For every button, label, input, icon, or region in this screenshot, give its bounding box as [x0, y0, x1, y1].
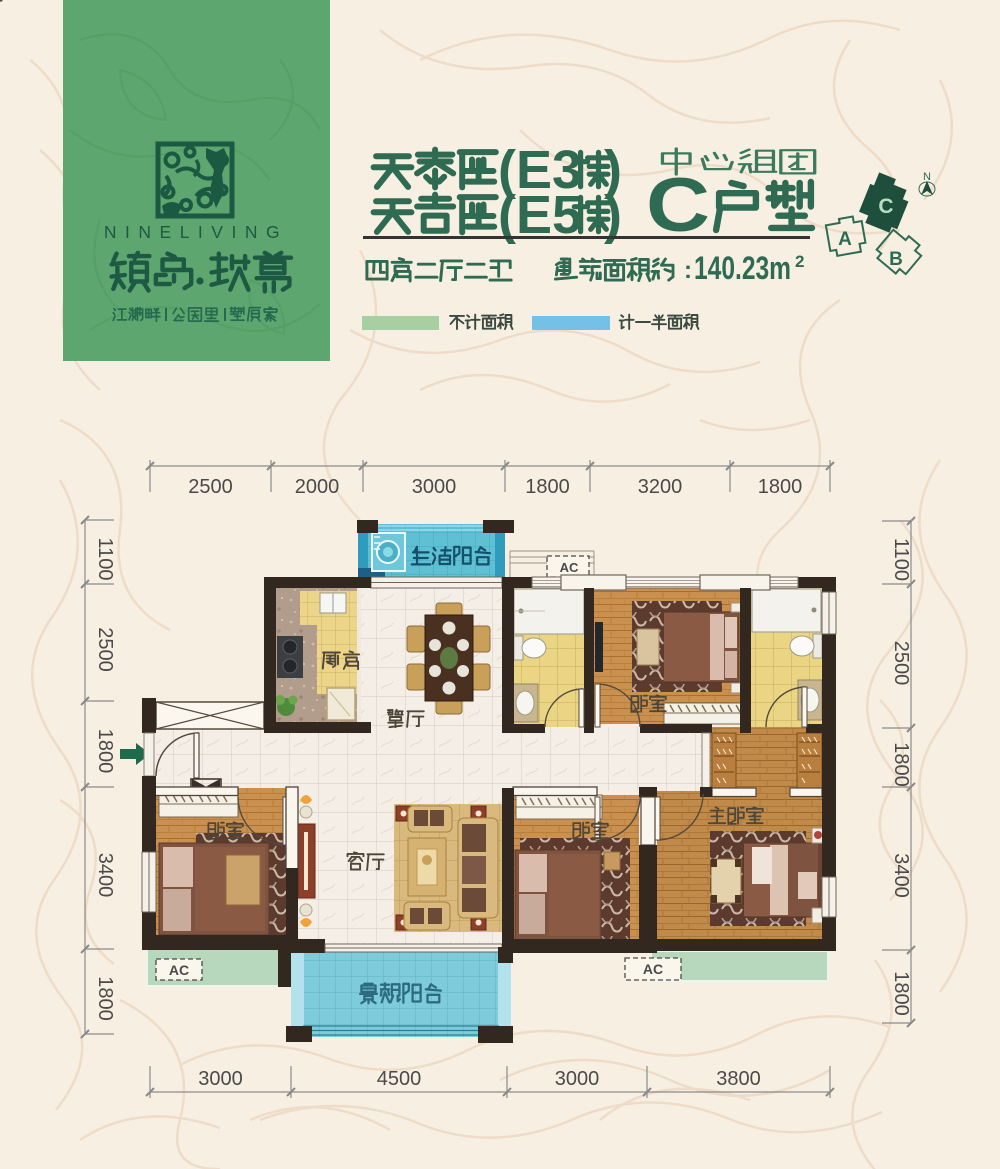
svg-text:C: C [646, 163, 710, 248]
svg-text:1800: 1800 [94, 976, 116, 1021]
svg-text:B: B [889, 249, 903, 270]
svg-text:AC: AC [169, 962, 189, 978]
svg-text:1800: 1800 [94, 729, 116, 774]
svg-text:3000: 3000 [198, 1068, 243, 1090]
svg-text:1800: 1800 [890, 971, 912, 1016]
svg-text:2500: 2500 [188, 476, 233, 498]
svg-text:140.23m: 140.23m [694, 250, 791, 286]
svg-text:3000: 3000 [555, 1068, 600, 1090]
svg-text:3800: 3800 [716, 1068, 761, 1090]
svg-text:2500: 2500 [94, 627, 116, 672]
svg-text:1800: 1800 [890, 742, 912, 787]
svg-text:1800: 1800 [525, 476, 570, 498]
svg-text:1100: 1100 [890, 538, 912, 581]
svg-text:NINELIVING: NINELIVING [104, 222, 288, 242]
svg-text:1100: 1100 [94, 537, 116, 580]
svg-text:C: C [878, 195, 893, 218]
svg-text:AC: AC [643, 961, 663, 977]
svg-text:2: 2 [795, 252, 804, 271]
svg-text::: : [684, 257, 692, 284]
svg-text:1800: 1800 [758, 476, 803, 498]
svg-text:3200: 3200 [638, 476, 683, 498]
svg-text:AC: AC [560, 560, 579, 575]
svg-text:3000: 3000 [412, 476, 457, 498]
svg-text:A: A [838, 229, 852, 250]
svg-text:2000: 2000 [295, 476, 340, 498]
svg-text:2500: 2500 [890, 641, 912, 686]
svg-text:3400: 3400 [94, 853, 116, 898]
svg-text:4500: 4500 [377, 1068, 422, 1090]
svg-text:3400: 3400 [890, 853, 912, 898]
